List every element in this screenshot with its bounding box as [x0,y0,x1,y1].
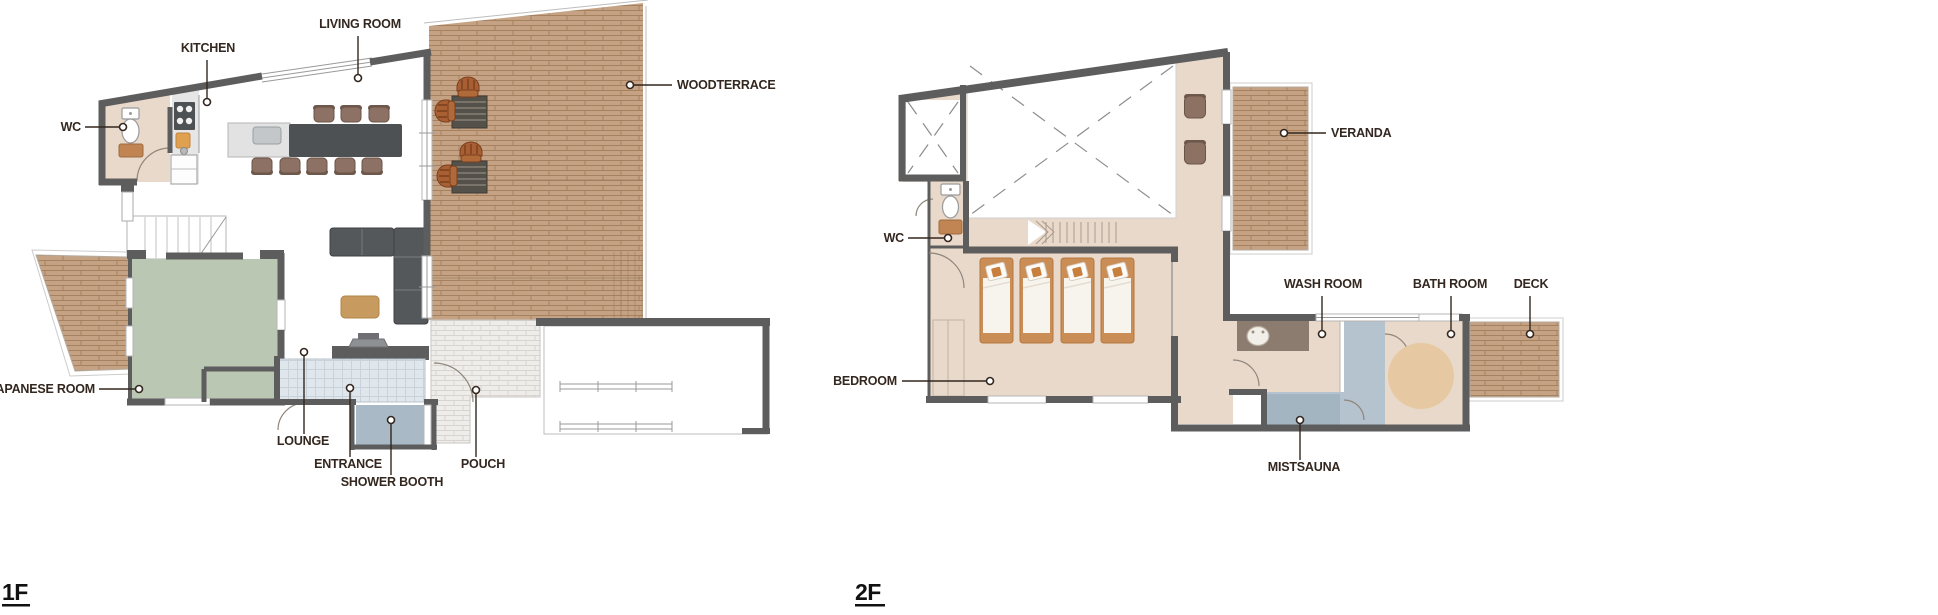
cutting-board [176,133,190,148]
label-woodterrace: WOODTERRACE [627,78,776,92]
dining-chair [313,105,335,122]
floor2-title-text: 2F [855,579,881,605]
floor1-plan: KITCHEN LIVING ROOM WC WOODTERRACE JAPAN… [0,0,776,607]
door-arc [278,403,305,430]
veranda [1230,83,1312,254]
floor2-title: 2F [855,579,885,607]
living-room-label: LIVING ROOM [319,17,401,31]
hall-chair [1184,94,1206,118]
faucet-icon [181,148,188,155]
approach-corridor [536,322,770,434]
kitchen-island [228,105,402,175]
deck-label: DECK [1514,277,1549,291]
dining-chair [334,158,356,175]
tv-icon [349,339,388,347]
garden-deck [32,250,130,376]
closet [933,320,964,396]
wood-terrace [424,0,648,320]
stairs-1f [121,184,226,259]
sink-icon [253,127,281,144]
wc-label: WC [61,120,82,134]
veranda-label: VERANDA [1331,126,1392,140]
toilet-icon [943,196,959,218]
dining-chair [340,105,362,122]
pouch-area [431,320,540,443]
bedroom-label: BEDROOM [833,374,897,388]
bed [1101,258,1134,343]
lounge-label: LOUNGE [277,434,329,448]
floor1-title-text: 1F [2,579,28,605]
woodterrace-label: WOODTERRACE [677,78,776,92]
shower-booth-label: SHOWER BOOTH [341,475,444,489]
dining-chair [306,158,328,175]
deck-2f [1466,318,1563,401]
wc-label: WC [884,231,905,245]
coffee-table [341,296,379,318]
kitchen-area [171,87,199,184]
floor1-title: 1F [2,579,30,607]
dining-chair [279,158,301,175]
corridor-floor [1178,321,1233,424]
bath-room-label: BATH ROOM [1413,277,1487,291]
wash-room-label: WASH ROOM [1284,277,1362,291]
bath-mat [939,220,962,234]
tv-icon [358,333,379,339]
floor2-plan: VERANDA WC BEDROOM WASH ROOM BATH ROOM D… [833,51,1563,607]
stove-icon [174,102,195,130]
dining-chair [368,105,390,122]
bathtub-icon [1388,343,1454,409]
bed [980,258,1013,343]
bed [1061,258,1094,343]
void-small [906,100,960,175]
dining-chair [361,158,383,175]
pouch-label: POUCH [461,457,505,471]
bed [1020,258,1053,343]
entrance-label: ENTRANCE [314,457,382,471]
sink-icon [1247,327,1269,346]
mistsauna-label: MISTSAUNA [1268,460,1341,474]
shower-booth-room [356,405,424,447]
dining-chair [251,158,273,175]
wc-room-1f [104,92,170,182]
kitchen-label: KITCHEN [181,41,235,55]
floor-plan-sheet: KITCHEN LIVING ROOM WC WOODTERRACE JAPAN… [0,0,1938,615]
hall-chair [1184,140,1206,164]
bath-mat [119,144,143,157]
label-japanese-room: JAPANESE ROOM [0,382,143,396]
japanese-room-label: JAPANESE ROOM [0,382,95,396]
tv-board-wall [332,346,429,360]
lounge-area [330,228,429,360]
